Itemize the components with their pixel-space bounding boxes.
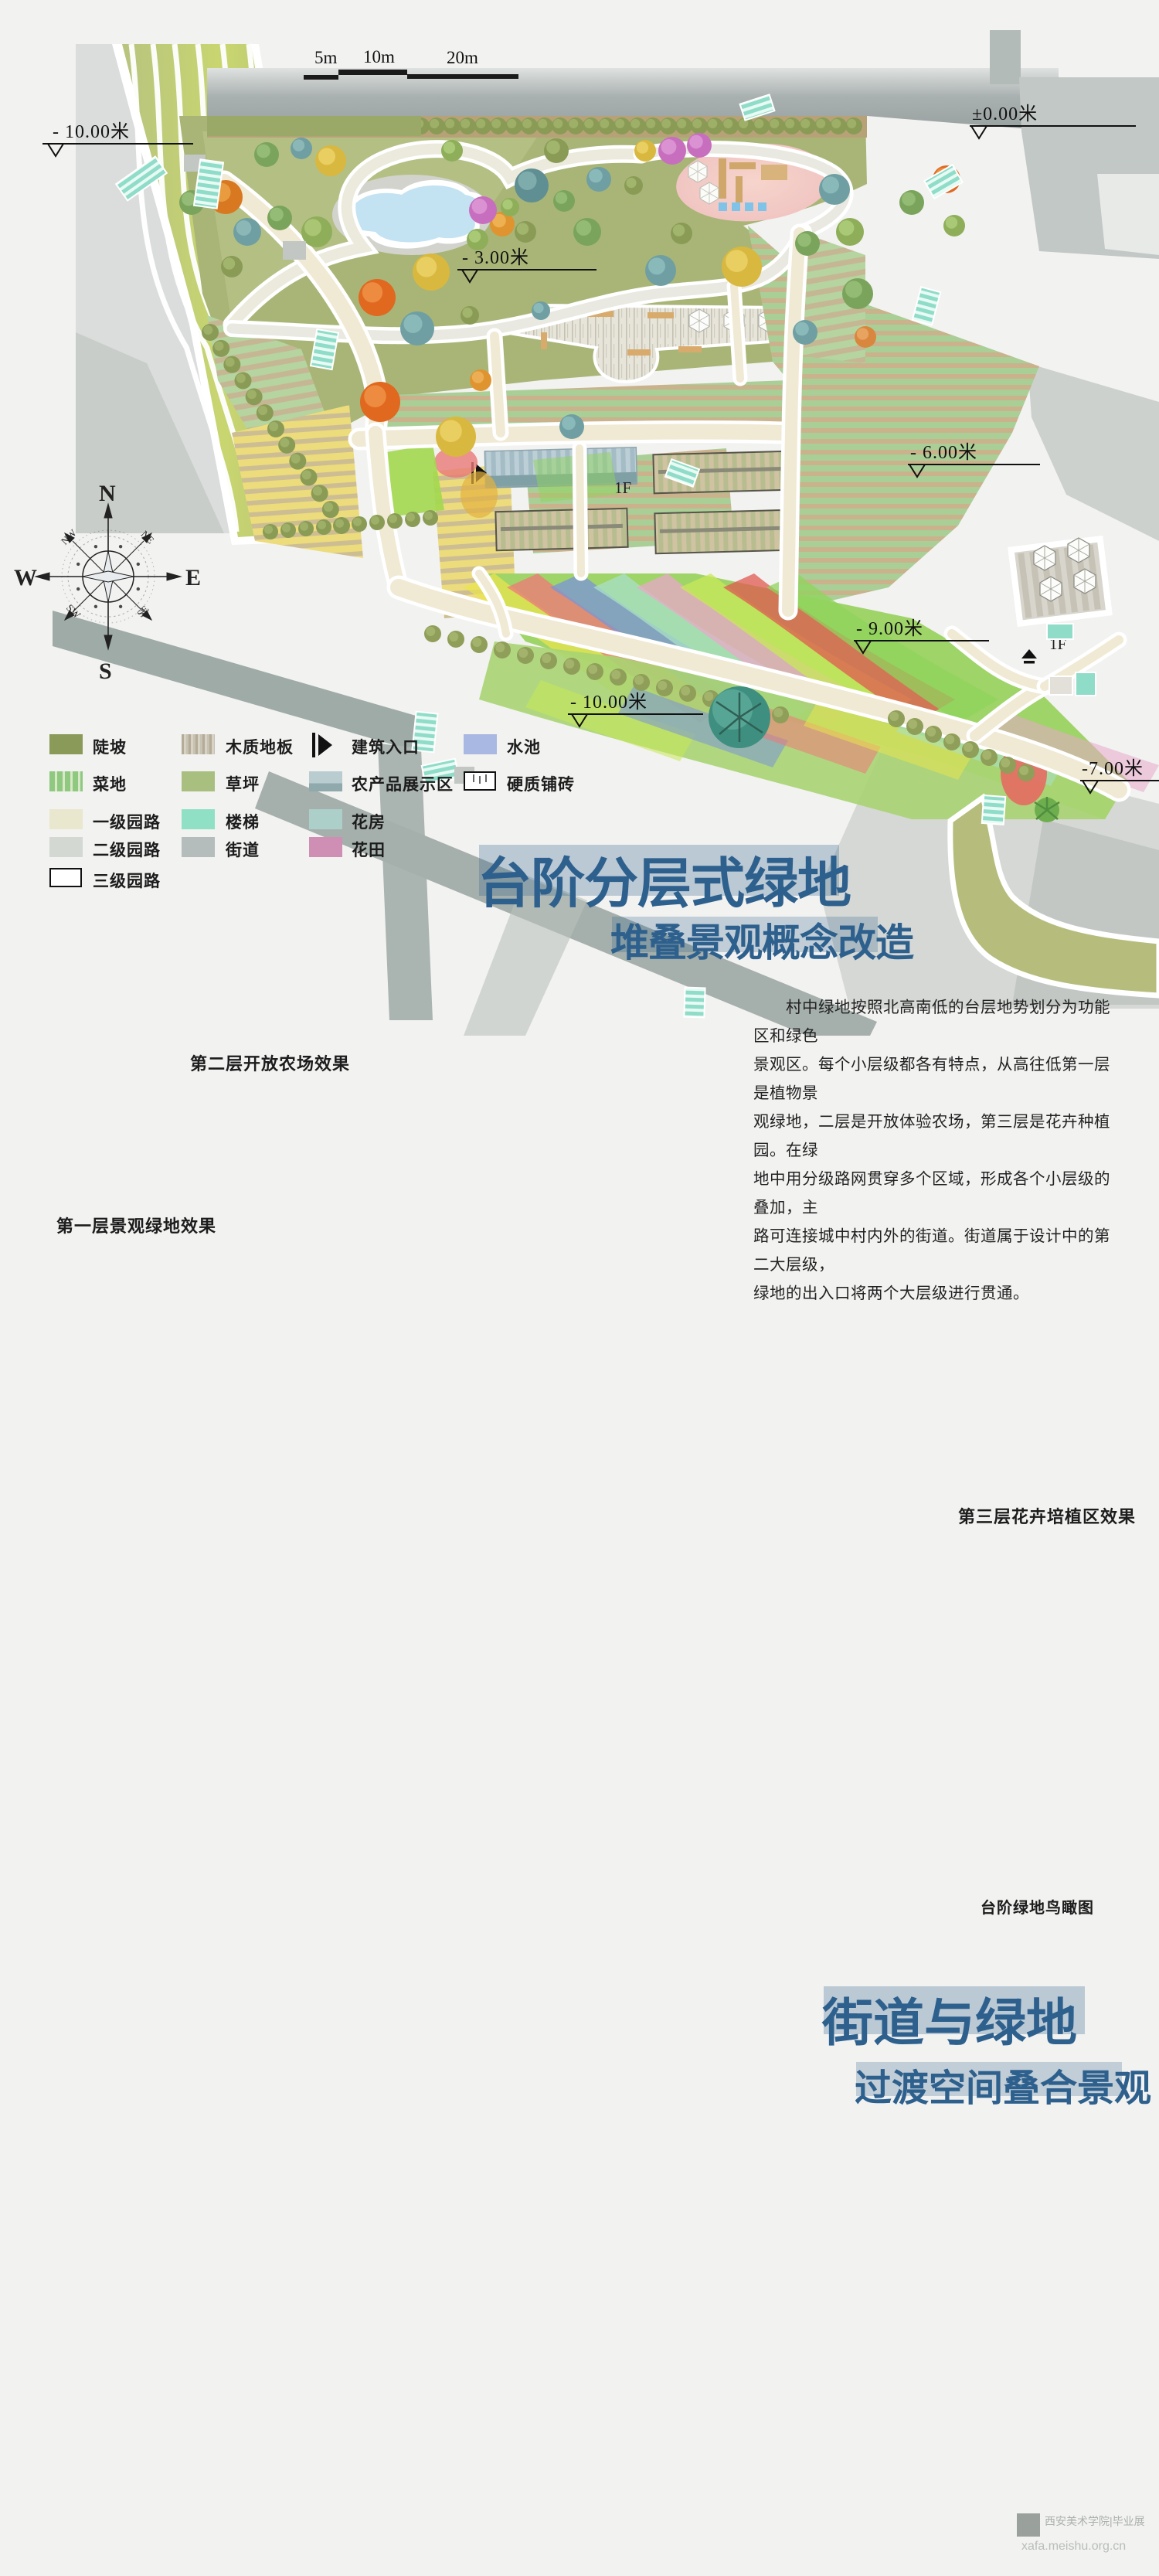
svg-text:-7.00米: -7.00米: [1082, 758, 1144, 779]
svg-text:E: E: [185, 565, 201, 590]
svg-text:5m: 5m: [314, 48, 338, 67]
svg-text:- 9.00米: - 9.00米: [856, 618, 923, 639]
svg-text:W: W: [14, 565, 37, 590]
svg-text:10m: 10m: [363, 47, 395, 66]
svg-text:- 10.00米: - 10.00米: [53, 121, 130, 142]
svg-text:±0.00米: ±0.00米: [972, 104, 1038, 124]
svg-text:S: S: [99, 658, 112, 684]
svg-text:N: N: [99, 481, 116, 506]
svg-text:20m: 20m: [447, 48, 478, 67]
svg-text:- 10.00米: - 10.00米: [570, 692, 647, 713]
svg-text:- 6.00米: - 6.00米: [910, 442, 977, 463]
svg-text:- 3.00米: - 3.00米: [462, 247, 529, 268]
